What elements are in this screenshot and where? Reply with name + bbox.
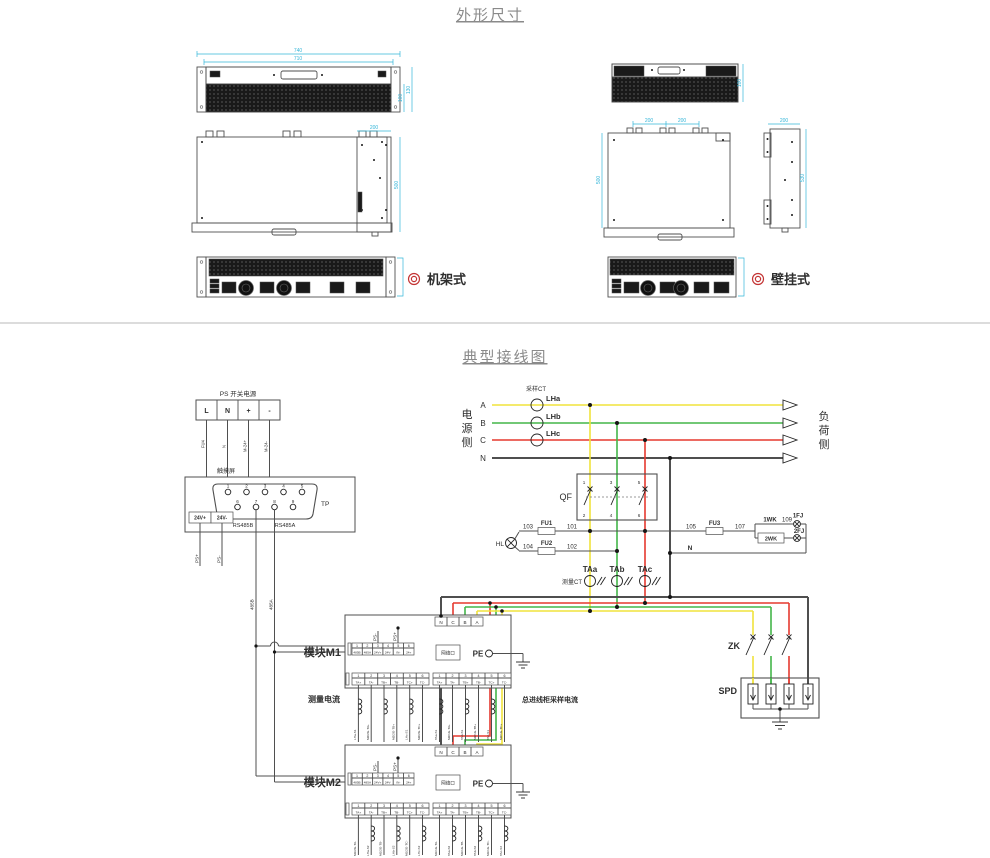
pin-4: 4 (282, 484, 285, 489)
m1-pterm-1: 485B (353, 651, 360, 655)
m1-lnum-1: 1 (357, 674, 359, 678)
m2-pe-label: PE (473, 780, 484, 789)
m2-ground-icon (516, 792, 530, 798)
wire-107: 107 (735, 525, 746, 531)
dim-530: 530 (800, 174, 806, 183)
fu1-label: FU1 (541, 521, 553, 527)
wall-rear-view (608, 257, 744, 297)
qf-terminal-6: 6 (638, 513, 641, 518)
m2-lnum-5: 5 (409, 804, 411, 808)
m1-pnum-3: 3 (377, 644, 379, 648)
qf-terminal-1: 1 (583, 480, 586, 485)
ps-terminal-plus: + (246, 408, 250, 415)
lha-label: LHa (546, 394, 561, 403)
m1-rwire-5: TAc-S1 (486, 730, 490, 740)
m1-lterm-2: TA- (369, 681, 374, 685)
m1-rterm-5: TC+ (489, 681, 495, 685)
wall-label: 壁挂式 (753, 272, 811, 287)
m1-pnum-5: 5 (397, 644, 399, 648)
m1-rterm-1: TA+ (437, 681, 443, 685)
qf-label: QF (560, 492, 573, 502)
wall-marker-icon (753, 274, 764, 285)
ps-terminal-l: L (204, 408, 209, 415)
section1-title: 外形尺寸 (456, 7, 524, 24)
terminal-24vm: 24V- (217, 516, 228, 522)
m2-net-port: 网络口 (441, 780, 455, 787)
m2-pnum-3: 3 (377, 774, 379, 778)
qf-terminal-2: 2 (583, 513, 586, 518)
pin-5: 5 (301, 484, 304, 489)
m2-pterm-6: 24+ (406, 781, 411, 785)
pin-6: 6 (236, 499, 239, 504)
dim-tab2: 200 (678, 118, 687, 124)
section2-title: 典型接线图 (462, 349, 547, 366)
dim-tab1: 200 (645, 118, 654, 124)
spd-label: SPD (718, 686, 737, 696)
m1-lterm-5: TC+ (407, 681, 413, 685)
m1-lnum-3: 3 (383, 674, 385, 678)
n-return-label: N (688, 545, 693, 552)
m2-rterm-6: TC- (502, 811, 507, 815)
m1-pnum-1: 1 (356, 644, 358, 648)
rs485a-label: RS485A (275, 523, 296, 529)
technical-drawing-svg: 外形尺寸 740 710 100 130 500 (0, 0, 990, 858)
phase-a-label: A (480, 401, 486, 410)
rack-label-text: 机架式 (427, 272, 466, 287)
m1-pterm-3: 24V+ (374, 651, 382, 655)
m2-psp-label: PS+ (393, 762, 398, 771)
pin-8: 8 (273, 499, 276, 504)
fu3-label: FU3 (709, 521, 721, 527)
rs485b-label: RS485B (233, 523, 254, 529)
wire-103: 103 (523, 525, 534, 531)
wire-104: 104 (523, 545, 534, 551)
psp-wire-label: PS+ (195, 554, 200, 563)
m2-pnum-4: 4 (387, 774, 389, 778)
m2-lnum-1: 1 (357, 804, 359, 808)
wire-102: 102 (567, 545, 578, 551)
m1-rterm-3: TB+ (463, 681, 469, 685)
m2-rwire-1: M1/1G-TA- (434, 841, 438, 856)
m1-rwire-1: TAa-S1 (434, 729, 438, 740)
spd-ground-icon (772, 722, 788, 729)
measuring-ct-label: 测量CT (562, 578, 582, 586)
rack-label: 机架式 (409, 272, 467, 287)
wire-485b-label: 485B (250, 599, 255, 610)
m2-rnum-4: 4 (478, 804, 480, 808)
m1-lterm-6: TC- (420, 681, 425, 685)
m2-lwire-4: LHb-S2 (391, 845, 395, 856)
taa-label: TAa (583, 565, 598, 574)
m1-pnum-4: 4 (387, 644, 389, 648)
rack-rear-view (197, 257, 403, 297)
m2-pnum-5: 5 (397, 774, 399, 778)
rack-side-view: 200 (357, 125, 391, 236)
touchscreen-title: 触摸屏 (217, 467, 235, 475)
ps-terminal-n: N (225, 408, 230, 415)
m2-ncba-n: N (439, 750, 442, 755)
m2-rterm-4: TB- (476, 811, 481, 815)
m1-rwire-6: M2/1G-TC+ (499, 724, 503, 740)
m2-lwire-6: LHc-S2 (417, 845, 421, 856)
m1-rnum-5: 5 (491, 674, 493, 678)
ps-wire-n: N (222, 445, 227, 448)
ps-wire-fu4: FU4 (201, 439, 206, 448)
m1-net-port: 网络口 (441, 650, 455, 657)
tp-label: TP (321, 501, 329, 508)
m2-rwire-6: TAc-S2 (499, 846, 503, 856)
m1-lwire-1: LHa-S1 (353, 729, 357, 740)
pin-1: 1 (227, 484, 230, 489)
m2-rterm-3: TB+ (463, 811, 469, 815)
zk-label: ZK (728, 641, 740, 651)
m2-lnum-6: 6 (422, 804, 424, 808)
wire-101: 101 (567, 525, 578, 531)
fj2-label: 2FJ (794, 529, 804, 535)
m2-lterm-1: TA+ (356, 811, 362, 815)
rack-front-view: 740 710 100 130 (197, 48, 412, 112)
m1-pterm-6: 24+ (406, 651, 411, 655)
wire-485a-label: 485A (269, 598, 274, 610)
qf-terminal-5: 5 (638, 480, 641, 485)
wk1-label: 1WK (763, 518, 777, 524)
m2-pterm-3: 24V+ (374, 781, 382, 785)
m2-rnum-6: 6 (504, 804, 506, 808)
m2-rwire-5: M1/1G-TC- (486, 841, 490, 856)
m2-pnum-6: 6 (408, 774, 410, 778)
psm-wire-label: PS- (217, 555, 222, 563)
m2-rterm-1: TA+ (437, 811, 443, 815)
ps-wire-m24m: M-24- (264, 440, 269, 452)
m2-rterm-2: TA- (450, 811, 455, 815)
m1-rterm-4: TB- (476, 681, 481, 685)
dim-wall-500: 500 (596, 176, 602, 185)
m1-lnum-6: 6 (422, 674, 424, 678)
m2-rnum-1: 1 (439, 804, 441, 808)
wire-109: 109 (782, 518, 793, 524)
rack-top-view: 500 (192, 131, 400, 235)
dim-740: 740 (294, 48, 303, 54)
m2-lwire-3: M1/2G-TB- (379, 841, 383, 856)
wire-105: 105 (686, 525, 697, 531)
m2-rwire-2: TAa-S2 (447, 845, 451, 856)
ps-title: PS 开关电源 (220, 389, 257, 398)
m2-ct-wires: M1/2G-TA- LHa-S2 M1/2G-TB- LHb-S2 M1/2G-… (353, 815, 508, 856)
m2-lterm-4: TB- (394, 811, 399, 815)
m1-psm-label: PS- (373, 633, 378, 641)
wk2-label: 2WK (765, 537, 777, 543)
m1-pterm-5: IN- (396, 651, 400, 655)
wall-top-view: 200 200 500 (596, 118, 734, 240)
m1-lnum-2: 2 (370, 674, 372, 678)
dim-100: 100 (398, 94, 404, 103)
m2-pterm-4: 24V- (385, 781, 391, 785)
ps-power-supply: PS 开关电源 L N + - FU4 N M-24+ M-24- (196, 389, 280, 477)
pin-7: 7 (255, 499, 258, 504)
m1-lwire-4: M2/2G-TB+ (391, 724, 395, 740)
m1-lterm-3: TB+ (381, 681, 387, 685)
m2-lnum-3: 3 (383, 804, 385, 808)
m2-rterm-5: TC+ (489, 811, 495, 815)
wall-front-view: 100 (612, 64, 743, 102)
phase-b-label: B (480, 419, 485, 428)
dim-710: 710 (294, 56, 303, 62)
m1-name: 模块M1 (304, 645, 341, 659)
m1-rnum-4: 4 (478, 674, 480, 678)
dim-wall-100: 100 (737, 79, 743, 88)
m1-rterm-2: TA- (450, 681, 455, 685)
tac-label: TAc (638, 565, 653, 574)
m2-ncba-b: B (463, 750, 466, 755)
m1-pterm-4: 24V- (385, 651, 391, 655)
m1-rnum-2: 2 (452, 674, 454, 678)
rack-marker-icon (409, 274, 420, 285)
m1-rwire-3: TAb-S1 (460, 729, 464, 740)
hl-label: HL (496, 541, 505, 548)
junction-dots (254, 403, 781, 760)
m1-lwire-5: LHc-S1 (404, 729, 408, 740)
m1-ncba-b: B (463, 620, 466, 625)
lhb-label: LHb (546, 412, 561, 421)
dim-130: 130 (406, 86, 412, 95)
load-side-char1: 负 (819, 409, 830, 423)
m2-lterm-3: TB+ (381, 811, 387, 815)
m1-ncba-n: N (439, 620, 442, 625)
pin-2: 2 (245, 484, 248, 489)
sampling-cts: 采样CT LHa LHb LHc (526, 385, 561, 446)
m1-pnum-2: 2 (366, 644, 368, 648)
m1-psp-label: PS+ (393, 632, 398, 641)
m2-rnum-5: 5 (491, 804, 493, 808)
module-m2: 模块M2 N C B A 1 2 3 4 5 6 485B 485A 24V+ … (304, 745, 530, 856)
zk-switches: ZK (728, 597, 808, 684)
fj1-label: 1FJ (793, 514, 803, 520)
m2-pnum-1: 1 (356, 774, 358, 778)
m1-rwire-2: M2/1G-TA+ (447, 724, 451, 740)
page: 外形尺寸 740 710 100 130 500 (0, 0, 990, 858)
m1-lwire-6: M2/2G-TC+ (417, 724, 421, 740)
qf-breaker: QF 1 3 5 2 4 6 (560, 474, 658, 520)
m1-lwire-2: M2/2G-TA+ (366, 724, 370, 740)
m1-rterm-6: TC- (502, 681, 507, 685)
phase-c-label: C (480, 436, 486, 445)
m2-rnum-3: 3 (465, 804, 467, 808)
dim-500: 500 (394, 181, 400, 190)
m1-ground-icon (516, 662, 530, 668)
m2-lwire-2: LHa-S2 (366, 845, 370, 856)
m2-pterm-2: 485A (364, 781, 372, 785)
m1-pterm-2: 485A (364, 651, 372, 655)
spd-unit: SPD (718, 678, 819, 729)
phase-n-label: N (480, 454, 486, 463)
fu2-label: FU2 (541, 541, 553, 547)
pin-3: 3 (264, 484, 267, 489)
m2-pterm-5: IN- (396, 781, 400, 785)
tab-label: TAb (610, 565, 625, 574)
m1-note-right: 总进线柜采样电流 (522, 695, 578, 704)
load-side-char2: 荷 (819, 424, 830, 437)
m2-lnum-2: 2 (370, 804, 372, 808)
m2-rwire-4: TAb-S2 (473, 845, 477, 856)
m2-lterm-5: TC+ (407, 811, 413, 815)
m1-rnum-1: 1 (439, 674, 441, 678)
sampling-ct-label: 采样CT (526, 385, 546, 393)
m1-rwire-4: M2/1G-TB+ (473, 724, 477, 740)
m2-rnum-2: 2 (452, 804, 454, 808)
m2-lwire-5: M1/2G-TC- (404, 841, 408, 856)
wall-side-view: 200 530 (764, 118, 806, 232)
m2-psm-label: PS- (373, 763, 378, 771)
m1-lnum-5: 5 (409, 674, 411, 678)
m2-pnum-2: 2 (366, 774, 368, 778)
m2-lterm-2: TA- (369, 811, 374, 815)
phase-drops (590, 405, 670, 611)
m1-pnum-6: 6 (408, 644, 410, 648)
terminal-24vp: 24V+ (194, 516, 206, 522)
qf-terminal-4: 4 (610, 513, 613, 518)
dim-wall-side-w: 200 (780, 118, 789, 124)
m1-lterm-1: TA+ (356, 681, 362, 685)
lhc-label: LHc (546, 429, 560, 438)
m2-name: 模块M2 (304, 775, 341, 789)
m2-rwire-3: M1/1G-TB- (460, 841, 464, 856)
m2-pterm-1: 485B (353, 781, 360, 785)
wall-label-text: 壁挂式 (771, 272, 810, 287)
m1-lterm-4: TB- (394, 681, 399, 685)
dim-200: 200 (370, 125, 379, 131)
m2-lterm-6: TC- (420, 811, 425, 815)
source-side-char2: 源 (462, 421, 473, 435)
qf-terminal-3: 3 (610, 480, 613, 485)
ps-wire-m24p: M-24+ (243, 439, 248, 452)
source-side-char1: 电 (462, 408, 473, 421)
m1-lnum-4: 4 (396, 674, 398, 678)
pin-9: 9 (292, 499, 295, 504)
touchscreen-connector: 触摸屏 1 2 3 4 5 6 7 8 9 TP 24V+ 24V- RS485… (185, 467, 355, 566)
m1-rnum-3: 3 (465, 674, 467, 678)
source-side-char3: 侧 (462, 436, 473, 449)
m1-ct-wires: LHa-S1 M2/2G-TA+ M2/2G-TB+ LHc-S1 M2/2G-… (353, 685, 505, 742)
m1-pe-label: PE (473, 650, 484, 659)
load-side-char3: 侧 (819, 438, 830, 451)
m2-lnum-4: 4 (396, 804, 398, 808)
m2-lwire-1: M1/2G-TA- (353, 841, 357, 856)
m1-rnum-6: 6 (504, 674, 506, 678)
m1-note-left: 测量电流 (308, 694, 340, 704)
